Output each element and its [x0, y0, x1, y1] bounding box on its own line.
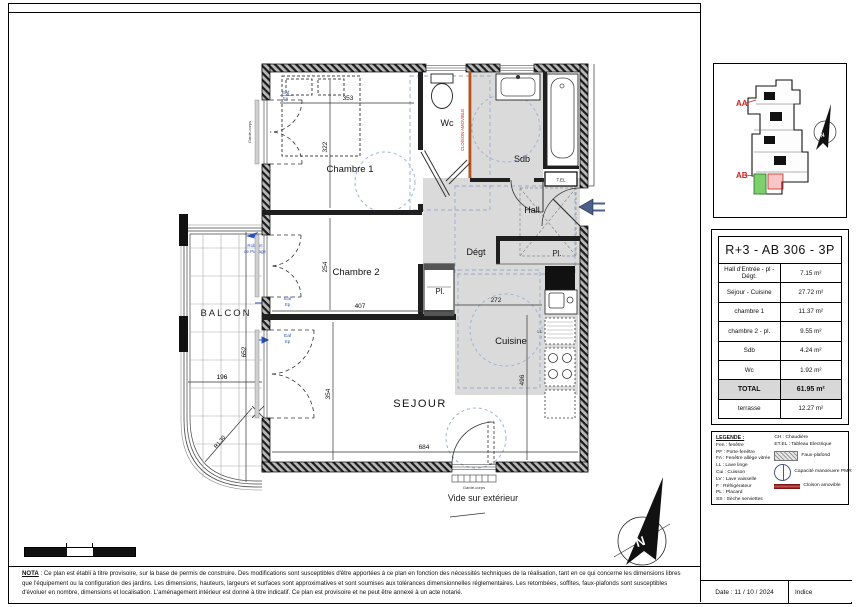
- scale-bar: [24, 547, 136, 557]
- placard-hall-label: Pl.: [552, 249, 561, 258]
- room-label-degt: Dégt: [466, 247, 486, 257]
- svg-text:Ep: Ep: [285, 302, 291, 307]
- north-compass: N: [614, 477, 670, 565]
- cloison-amovible-partition: [469, 72, 472, 178]
- fridge: [545, 390, 575, 418]
- area-row-value: 11.37 m²: [780, 302, 842, 321]
- kitchen-fixtures: [545, 290, 577, 418]
- date-indice-row: Date : 11 / 10 / 2024 Indice: [701, 580, 852, 604]
- dim-322: 322: [322, 141, 329, 152]
- highlighted-unit-green: [754, 174, 766, 194]
- cloison-amovible-legend-label: Cloison amovible: [803, 483, 840, 490]
- legend-panel: LEGENDE : Fen : fenêtre PF : Porte-fenêt…: [711, 431, 849, 505]
- area-row-label: chambre 2 - pl.: [719, 322, 781, 341]
- pmr-circle-icon: [774, 464, 791, 481]
- key-plan-svg: AA AB N: [714, 64, 846, 217]
- room-label-hall: Hall: [524, 205, 540, 215]
- toilet-bowl: [432, 84, 453, 109]
- area-row-label: terrasse: [719, 399, 781, 418]
- balcony-tile-grid: [190, 235, 262, 482]
- legend-heading: LEGENDE :: [716, 435, 744, 441]
- legend-right-column: CH : Chaudière ET.EL : Tableau Electriqu…: [774, 435, 852, 501]
- dim-353: 353: [343, 95, 354, 102]
- key-plan-label-aa: AA: [736, 99, 748, 108]
- pmr-label: Capacité manoeuvre PMR: [794, 469, 852, 476]
- svg-text:Ep: Ep: [285, 339, 291, 344]
- dim-652: 652: [241, 346, 248, 357]
- placard-label: Pl.: [435, 287, 444, 296]
- garde-corps-left-label: Garde-corps: [247, 121, 252, 143]
- area-row-label: chambre 1: [719, 302, 781, 321]
- key-plan-label-ab: AB: [736, 171, 748, 180]
- dim-196: 196: [217, 374, 228, 381]
- nota-text: NOTA : Ce plan est établi à titre provis…: [22, 569, 684, 598]
- faux-plafond-swatch: [774, 451, 798, 461]
- key-plan-panel: AA AB N: [713, 63, 847, 218]
- area-total-label: TOTAL: [719, 380, 781, 399]
- key-plan-north-arrow: N: [814, 104, 836, 150]
- toilet-tank: [431, 74, 453, 83]
- dim-254: 254: [322, 261, 329, 272]
- floorplan-sheet: BALCON 652 196 R1.30 Robinet de Puisage: [0, 0, 860, 607]
- dim-684: 684: [419, 444, 430, 451]
- room-label-balcon: BALCON: [200, 308, 251, 319]
- room-label-wc: Wc: [441, 118, 454, 128]
- lave-linge-label: LL: [537, 329, 542, 334]
- faux-plafond-label: Faux-plafond: [801, 453, 830, 460]
- tableau-electrique-label: T.EL: [556, 178, 566, 183]
- dim-496: 496: [519, 374, 526, 385]
- area-total-value: 61.95 m²: [780, 380, 842, 399]
- area-row-label: Sdb: [719, 341, 781, 360]
- date-label: Date : 11 / 10 / 2024: [701, 581, 789, 603]
- neighbour-edge: [588, 64, 594, 186]
- dim-radius: R1.30: [213, 435, 227, 450]
- unit-area-table-panel: R+3 - AB 306 - 3P Hall d'Entrée - pl - D…: [711, 229, 849, 425]
- dim-407: 407: [355, 303, 366, 310]
- area-row-value: 9.55 m²: [780, 322, 842, 341]
- building-footprint: AA AB: [736, 80, 808, 194]
- unit-area-table: R+3 - AB 306 - 3P Hall d'Entrée - pl - D…: [718, 236, 842, 419]
- area-row-value: 1.92 m²: [780, 360, 842, 379]
- balcony: BALCON 652 196 R1.30 Robinet de Puisage: [179, 214, 268, 490]
- dim-354: 354: [325, 388, 332, 399]
- cloison-amovible-swatch: [774, 484, 800, 489]
- highlighted-unit-red: [768, 174, 783, 189]
- cloison-amovible-label: CLOISON AMOVIBLE: [460, 109, 465, 151]
- area-row-label: Hall d'Entrée - pl - Dégt.: [719, 264, 781, 283]
- area-row-value: 12.27 m²: [780, 399, 842, 418]
- nota-label: NOTA: [22, 570, 39, 577]
- dim-272: 272: [491, 297, 502, 304]
- bed: [282, 76, 360, 156]
- legend-left-column: LEGENDE : Fen : fenêtre PF : Porte-fenêt…: [716, 435, 770, 501]
- garde-corps-bottom: [452, 475, 496, 482]
- room-label-sejour: SEJOUR: [393, 398, 447, 410]
- hob: [545, 348, 575, 386]
- area-row-label: Wc: [719, 360, 781, 379]
- placard-middle: Pl.: [424, 264, 454, 316]
- indice-label: Indice: [789, 581, 852, 603]
- balcony-pier: [179, 316, 188, 352]
- area-row-label: Séjour - Cuisine: [719, 283, 781, 302]
- room-label-sdb: Sdb: [514, 154, 530, 164]
- svg-text:Ep: Ep: [283, 96, 289, 101]
- unit-title: R+3 - AB 306 - 3P: [719, 237, 842, 264]
- entry-arrow-icon: [579, 199, 605, 215]
- vide-sur-exterieur-label: Vide sur extérieur: [448, 493, 518, 503]
- area-row-value: 7.15 m²: [780, 264, 842, 283]
- balcony-pier: [179, 214, 188, 246]
- room-label-chambre2: Chambre 2: [333, 267, 380, 278]
- room-label-chambre1: Chambre 1: [327, 164, 374, 175]
- title-block-column: AA AB N R+3 - AB 306 - 3P Hall d'Entrée …: [700, 3, 852, 602]
- area-row-value: 4.24 m²: [780, 341, 842, 360]
- garde-corps-bottom-label: Garde-corps: [463, 485, 485, 490]
- utility-labels: Eaf Ep Eaf Ep Eaf Ep: [280, 90, 293, 344]
- room-label-cuisine: Cuisine: [495, 336, 527, 347]
- area-row-value: 27.72 m²: [780, 283, 842, 302]
